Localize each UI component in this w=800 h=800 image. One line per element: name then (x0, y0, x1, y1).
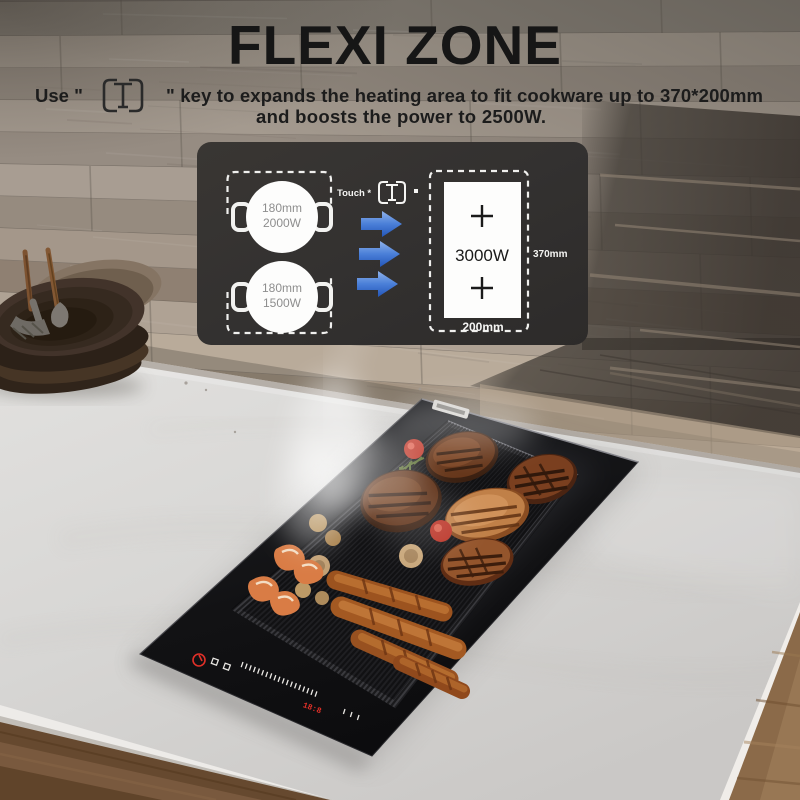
svg-text:FLEXI ZONE: FLEXI ZONE (228, 14, 562, 76)
svg-text:1500W: 1500W (263, 296, 302, 310)
svg-text:180mm: 180mm (262, 281, 302, 295)
svg-text:Touch *: Touch * (337, 188, 371, 199)
svg-text:3000W: 3000W (455, 246, 509, 265)
svg-text:370mm: 370mm (533, 249, 568, 260)
svg-text:and boosts the power to 2500W.: and boosts the power to 2500W. (256, 106, 546, 127)
svg-text:180mm: 180mm (262, 201, 302, 215)
svg-text:2000W: 2000W (263, 216, 302, 230)
svg-text:200mm: 200mm (462, 320, 503, 334)
svg-text:" key to expands the heating a: " key to expands the heating area to fit… (166, 85, 763, 106)
svg-text:Use ": Use " (35, 85, 83, 106)
